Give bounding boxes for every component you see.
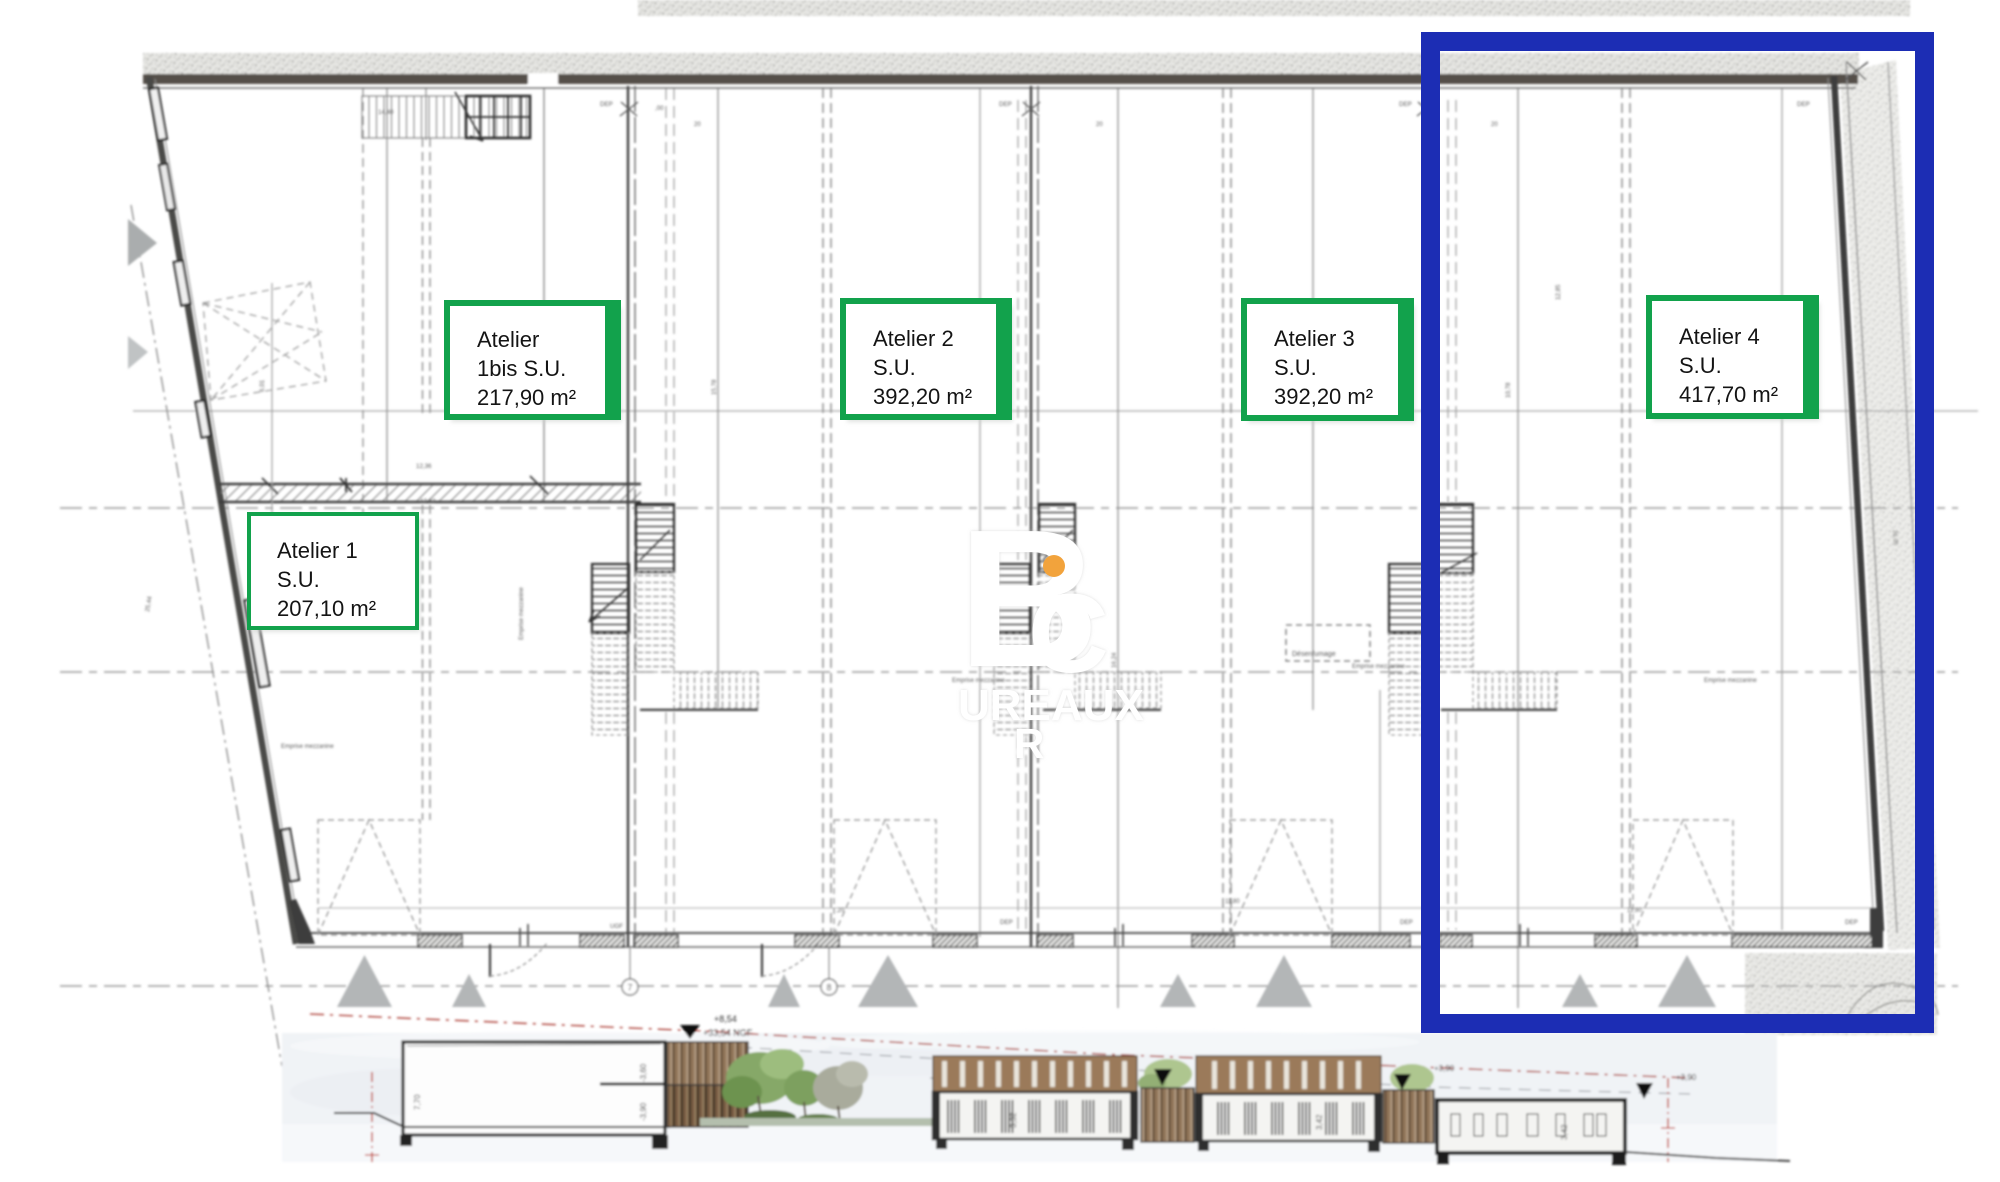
svg-text:10,78: 10,78: [1505, 382, 1512, 398]
svg-text:+3,90: +3,90: [1434, 1064, 1455, 1073]
svg-text:26,05: 26,05: [1891, 530, 1899, 546]
svg-text:UREAUX: UREAUX: [958, 681, 1144, 730]
svg-text:R: R: [1014, 720, 1044, 767]
svg-text:12,85: 12,85: [1555, 284, 1562, 300]
svg-text:Emprise mezzanine: Emprise mezzanine: [1704, 678, 1757, 684]
svg-text:6,01: 6,01: [259, 379, 266, 392]
svg-text:+3,90: +3,90: [1676, 1073, 1697, 1082]
svg-text:11,80: 11,80: [1225, 899, 1240, 905]
svg-text:1bis S.U.: 1bis S.U.: [477, 356, 566, 381]
svg-text:207,10 m²: 207,10 m²: [277, 596, 376, 621]
svg-text:8: 8: [826, 983, 831, 993]
svg-text:Atelier: Atelier: [477, 327, 539, 352]
svg-text:Atelier 4: Atelier 4: [1679, 324, 1760, 349]
svg-text:Atelier 1: Atelier 1: [277, 538, 358, 563]
svg-text:7: 7: [627, 983, 632, 993]
svg-text:Emprise mezzanine: Emprise mezzanine: [519, 587, 525, 640]
svg-text:20: 20: [1096, 122, 1103, 128]
svg-text:3,42: 3,42: [1560, 1124, 1569, 1140]
svg-text:DEP: DEP: [1399, 101, 1412, 108]
svg-text:Désenfumage: Désenfumage: [1292, 651, 1336, 658]
svg-text:S.U.: S.U.: [1274, 355, 1317, 380]
svg-text:-3,90: -3,90: [639, 1102, 648, 1121]
svg-text:Emprise mezzanine: Emprise mezzanine: [281, 744, 334, 750]
svg-text:UGF: UGF: [610, 923, 623, 930]
svg-text:7,70: 7,70: [413, 1094, 422, 1110]
svg-text:392,20 m²: 392,20 m²: [873, 384, 972, 409]
svg-text:417,70 m²: 417,70 m²: [1679, 382, 1778, 407]
svg-text:20: 20: [1491, 122, 1498, 128]
svg-text:15,78: 15,78: [711, 379, 718, 395]
svg-text:DEP: DEP: [1000, 919, 1013, 926]
svg-text:392,20 m²: 392,20 m²: [1274, 384, 1373, 409]
svg-text:14,40: 14,40: [378, 109, 394, 116]
svg-text:11,90: 11,90: [1627, 908, 1642, 914]
svg-text:S.U.: S.U.: [277, 567, 320, 592]
svg-text:12,36: 12,36: [416, 463, 432, 470]
svg-text:12,62: 12,62: [420, 498, 436, 505]
svg-text:+33,54 NGF: +33,54 NGF: [703, 1028, 753, 1038]
svg-text:DEP: DEP: [999, 101, 1012, 108]
svg-text:3,42: 3,42: [1315, 1114, 1324, 1130]
svg-text:DEP: DEP: [1845, 919, 1858, 926]
svg-text:S.U.: S.U.: [1679, 353, 1722, 378]
svg-text:DEP: DEP: [1400, 919, 1413, 926]
svg-text:,20: ,20: [836, 908, 845, 914]
svg-text:DEP: DEP: [600, 101, 613, 108]
svg-text:Atelier 3: Atelier 3: [1274, 326, 1355, 351]
svg-text:20: 20: [694, 122, 701, 128]
svg-text:S.U.: S.U.: [873, 355, 916, 380]
svg-text:C: C: [1028, 571, 1109, 696]
svg-text:,00: ,00: [655, 105, 664, 112]
svg-text:217,90 m²: 217,90 m²: [477, 385, 576, 410]
svg-text:3,32: 3,32: [1009, 1112, 1018, 1128]
svg-text:Atelier 2: Atelier 2: [873, 326, 954, 351]
svg-text:-3,60: -3,60: [639, 1063, 648, 1082]
svg-text:DEP: DEP: [1797, 101, 1810, 108]
svg-text:+8,54: +8,54: [714, 1014, 737, 1024]
svg-text:Emprise mezzanine: Emprise mezzanine: [1352, 664, 1405, 670]
svg-text:16,24: 16,24: [1111, 652, 1118, 668]
